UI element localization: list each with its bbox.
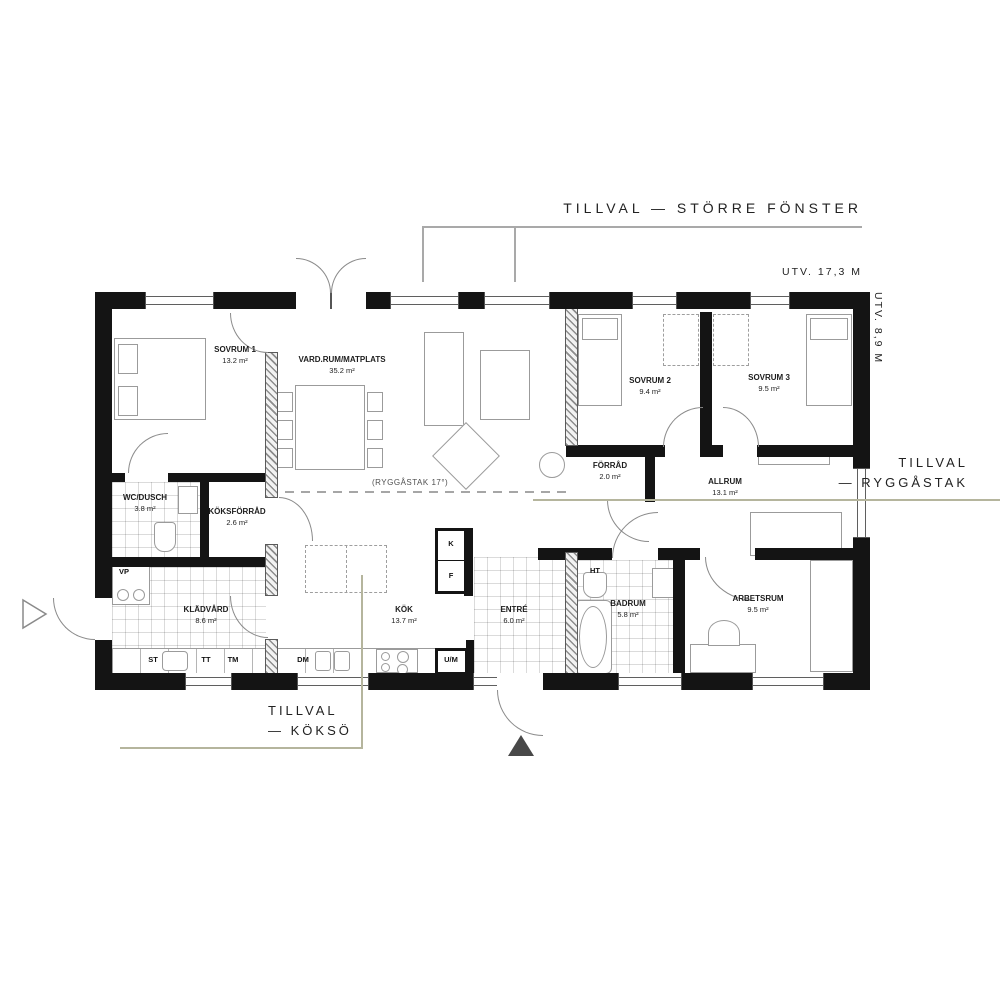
room-name: SOVRUM 3 [748,372,790,383]
label-f: F [449,571,454,580]
room-name: SOVRUM 1 [214,344,256,355]
door-arc-main-entrance [497,690,543,736]
room-name: WC/DUSCH [123,492,167,503]
leader-drop-line [514,226,516,282]
room-area: 3.8 m² [123,503,167,514]
wall [466,640,474,673]
vp-dial [133,589,145,601]
wall [645,445,655,502]
hatched-wall [266,640,277,673]
tv-bench [480,350,530,420]
door-arc-side-entrance [53,598,95,640]
room-label-sovrum2: SOVRUM 2 9.4 m² [629,375,671,397]
annotation-island-line2: — KÖKSÖ [268,721,352,741]
room-name: KLÄDVÅRD [184,604,229,615]
dimension-height: UTV. 8,9 M [872,292,884,364]
room-area: 2.6 m² [208,517,265,528]
window [473,673,499,690]
fridge-freezer-unit [435,528,467,594]
wall [700,445,723,457]
room-area: 5.8 m² [610,609,646,620]
room-label-wc-dusch: WC/DUSCH 3.8 m² [123,492,167,514]
room-label-vardagsrum: VARD.RUM/MATPLATS 35.2 m² [298,354,385,376]
window [618,673,682,690]
room-area: 13.2 m² [214,355,256,366]
room-area: 35.2 m² [298,365,385,376]
label-k: K [448,539,453,548]
door-arc-sovrum3 [723,407,759,447]
dimension-width: UTV. 17,3 M [782,266,862,278]
room-label-forrad: FÖRRÅD 2.0 m² [593,460,627,482]
pillow [118,344,138,374]
side-door-opening [95,598,112,640]
hatched-wall [566,553,577,673]
bathtub-basin [579,606,607,668]
room-area: 9.4 m² [629,386,671,397]
side-entrance-arrow-icon [22,598,48,630]
wall [755,548,853,560]
wall [112,473,125,482]
label-tm: TM [228,655,239,664]
annotation-island-line1: TILLVAL [268,701,352,721]
annotation-ridge-line1: TILLVAL [839,453,968,473]
kitchen-island-divider [346,545,347,593]
room-name: KÖKSFÖRRÅD [208,506,265,517]
chair [367,420,383,440]
burner [381,663,390,672]
wall [538,548,566,560]
ridge-note: (RYGGÅSTAK 17°) [372,478,448,487]
wall [168,473,277,482]
window [390,292,459,309]
hatched-wall [266,545,277,595]
door-arc-koksforrad [279,497,313,541]
room-name: VARD.RUM/MATPLATS [298,354,385,365]
annotation-larger-windows: TILLVAL — STÖRRE FÖNSTER [563,200,862,216]
sink-wc [178,486,198,514]
room-name: ARBETSRUM [732,593,783,604]
room-label-kok: KÖK 13.7 m² [391,604,416,626]
room-area: 6.0 m² [500,615,527,626]
annotation-ridge-roof: TILLVAL — RYGGÅSTAK [839,453,968,493]
wardrobe-dashed [713,314,749,366]
bed-arbetsrum [810,560,853,672]
door-mullion [330,292,332,309]
wardrobe-dashed [663,314,699,366]
leader-drop-line [422,226,424,282]
burner [397,651,409,663]
toilet-badrum [583,572,607,598]
room-area: 8.6 m² [184,615,229,626]
chair [277,420,293,440]
window [484,292,550,309]
room-name: ENTRÉ [500,604,527,615]
room-label-sovrum1: SOVRUM 1 13.2 m² [214,344,256,366]
wall [464,528,473,596]
room-area: 2.0 m² [593,471,627,482]
room-label-badrum: BADRUM 5.8 m² [610,598,646,620]
door-arc-sovrum2 [663,407,703,447]
annotation-ridge-line2: — RYGGÅSTAK [839,473,968,493]
window [750,292,790,309]
door-arc-patio-left [296,258,331,293]
label-um: U/M [444,655,458,664]
pillow [118,386,138,416]
island-option-line-horizontal [120,747,363,749]
ridge-dashed-line [285,491,566,493]
label-dm: DM [297,655,309,664]
wall [112,557,277,567]
floor-plan: TILLVAL — STÖRRE FÖNSTER UTV. 17,3 M UTV… [0,0,1000,1000]
label-tt: TT [201,655,210,664]
window [752,673,824,690]
wall [673,557,685,673]
room-area: 9.5 m² [748,383,790,394]
window [145,292,214,309]
island-option-line-vertical [361,575,363,749]
desk-chair [708,620,740,646]
burner [381,652,390,661]
fridge-freezer-divider [438,560,464,561]
chair [367,392,383,412]
desk [690,644,756,673]
door-arc-wc [128,433,168,473]
room-label-sovrum3: SOVRUM 3 9.5 m² [748,372,790,394]
hatched-wall [266,353,277,497]
annotation-kitchen-island: TILLVAL — KÖKSÖ [268,701,352,741]
room-area: 13.1 m² [708,487,742,498]
chair [277,392,293,412]
door-arc-patio-right [331,258,366,293]
room-name: ALLRUM [708,476,742,487]
window [632,292,677,309]
label-vp: VP [119,567,129,576]
plant [539,452,565,478]
kitchen-sink-right [334,651,350,671]
window [185,673,232,690]
leader-line-larger-windows [422,226,862,228]
room-name: SOVRUM 2 [629,375,671,386]
pillow [582,318,618,340]
vp-dial [117,589,129,601]
label-ht: HT [590,566,600,575]
room-label-kladvard: KLÄDVÅRD 8.6 m² [184,604,229,626]
laundry-counter [112,648,266,674]
room-name: BADRUM [610,598,646,609]
room-name: KÖK [391,604,416,615]
hatched-wall [566,309,577,445]
laundry-sink [162,651,188,671]
ridge-option-line [533,499,1000,501]
room-label-koksforrad: KÖKSFÖRRÅD 2.6 m² [208,506,265,528]
toilet-wc [154,522,176,552]
room-label-arbetsrum: ARBETSRUM 9.5 m² [732,593,783,615]
room-area: 13.7 m² [391,615,416,626]
room-label-allrum: ALLRUM 13.1 m² [708,476,742,498]
window [297,673,369,690]
chair [277,448,293,468]
pillow [810,318,848,340]
room-label-entre: ENTRÉ 6.0 m² [500,604,527,626]
room-name: FÖRRÅD [593,460,627,471]
chair [367,448,383,468]
sofa-livingroom [424,332,464,426]
room-area: 9.5 m² [732,604,783,615]
entrance-marker-triangle [508,735,534,756]
label-st: ST [148,655,158,664]
dining-table [295,385,365,470]
kitchen-sink-left [315,651,331,671]
entrance-door-opening [497,673,543,690]
